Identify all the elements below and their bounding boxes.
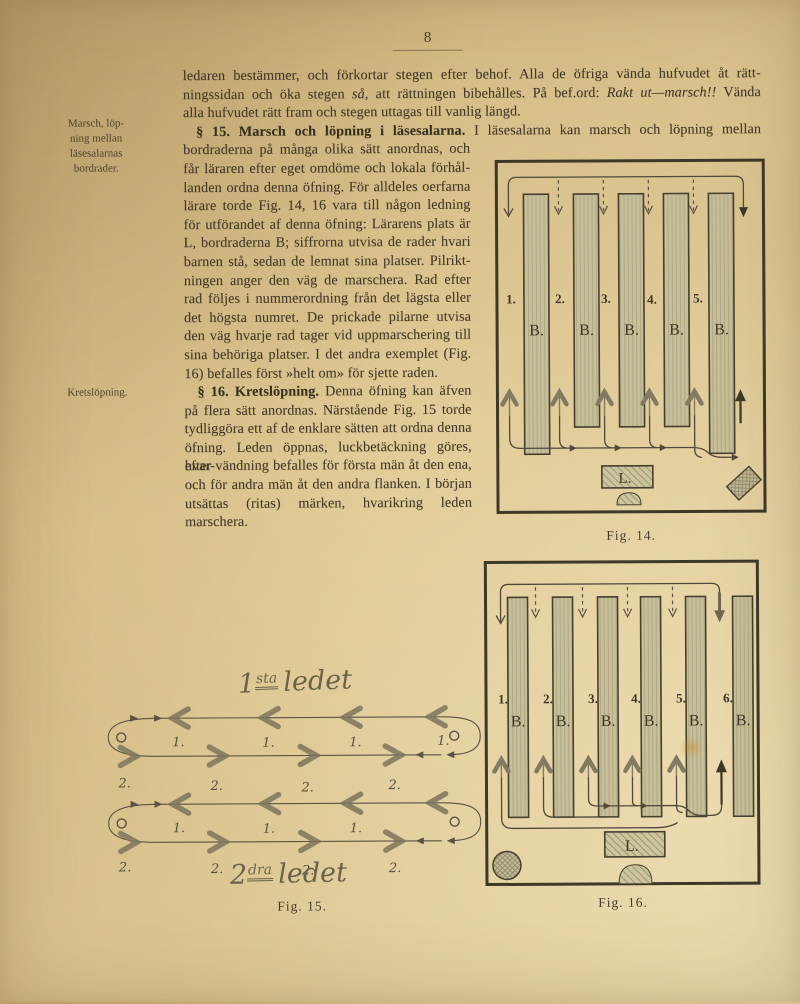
text-line: och för andra män åt den andra flanken. …: [185, 475, 472, 495]
scanned-book-page: { "page": { "number": "8" }, "margin_not…: [0, 0, 800, 1002]
text-line: öfning. Leden öppnas, luckbetäckning gör…: [185, 437, 472, 457]
desk-row: [641, 597, 662, 817]
margin-note-line: läsesalarnas: [32, 146, 160, 162]
fig16-desk-rows: [508, 596, 754, 817]
svg-text:1.: 1.: [263, 822, 275, 837]
svg-text:2.: 2.: [300, 780, 313, 795]
turning-mark-circle: [117, 733, 126, 742]
desk-row: [618, 194, 644, 427]
rank1-number: 1: [237, 668, 255, 700]
margin-note-marsch: Marsch, löp- ning mellan läsesalarnas bo…: [32, 116, 160, 177]
text-line: lärare torde Fig. 14, 16 vara till någon…: [183, 196, 470, 216]
svg-text:1.: 1.: [350, 821, 362, 836]
svg-text:B.: B.: [511, 713, 526, 730]
fig16-classroom-diagram: 1. 2. 3. 4. 5. 6. B. B. B. B. B. B.: [478, 554, 770, 924]
left-turn-loop: [108, 718, 156, 756]
svg-text:1.: 1.: [498, 691, 508, 706]
svg-text:B.: B.: [601, 713, 616, 730]
text-line: för utförandet af denna öfning: Lärarens…: [184, 214, 471, 234]
svg-text:1.: 1.: [173, 821, 185, 836]
svg-text:1.: 1.: [262, 736, 274, 751]
svg-text:B.: B.: [579, 322, 594, 339]
svg-text:1.: 1.: [437, 734, 449, 749]
solid-arrow-down-icon: [739, 207, 748, 217]
svg-text:3.: 3.: [588, 691, 598, 706]
paper-stain: [675, 732, 707, 762]
svg-text:2.: 2.: [388, 861, 401, 876]
fig14-caption: Fig. 14.: [606, 528, 656, 543]
text-line: utsättas (ritas) märken, hvarikring lede…: [185, 493, 472, 513]
svg-text:5.: 5.: [676, 691, 686, 706]
fig14-thick-up-arrow: [735, 389, 746, 423]
text-line: ningen anger den väg de marschera. Rad e…: [184, 270, 471, 290]
svg-text:B.: B.: [529, 322, 544, 339]
fig16-thick-down-arrow: [714, 592, 725, 622]
section-15-heading-line: § 15. Marsch och löpning i läsesalarna. …: [183, 120, 761, 142]
text-line: ningssidan och öka stegen så, att rättni…: [183, 83, 761, 105]
margin-note-kretslopning: Kretslöpning.: [33, 385, 161, 401]
svg-text:3.: 3.: [601, 291, 611, 306]
fig15-circuit-running-diagram: 1.1. 1.1. 2.2. 2.2.: [96, 699, 497, 866]
svg-text:2.: 2.: [387, 778, 400, 793]
desk-row: [573, 194, 599, 427]
svg-text:B.: B.: [714, 321, 729, 338]
desk-row: [663, 193, 689, 426]
desk-row: [508, 597, 529, 817]
fig14-classroom-diagram: 1. 2. 3. 4. 5. B. B. B. B. B.: [490, 153, 772, 552]
page-content: 8 Marsch, löp- ning mellan läsesalarnas …: [0, 0, 800, 1004]
svg-text:4.: 4.: [647, 292, 657, 307]
desk-row: [686, 596, 707, 816]
svg-text:5.: 5.: [693, 290, 703, 305]
rank2-word: ledet: [273, 857, 347, 890]
svg-text:B.: B.: [669, 322, 684, 339]
rank1-ordinal-suffix: sta: [255, 670, 279, 690]
text-line: efter vändning befalles för första män å…: [185, 456, 472, 476]
right-turn-loop: [442, 803, 481, 841]
svg-text:1.: 1.: [506, 291, 516, 306]
pupil-chevrons: [120, 708, 445, 766]
margin-note-line: ning mellan: [32, 131, 160, 147]
text-line: bordraderna på många olika sätt anordnas…: [183, 140, 470, 160]
svg-text:2.: 2.: [209, 779, 222, 794]
desk-row: [553, 597, 574, 817]
fig14-desk-labels: B. B. B. B. B.: [529, 321, 729, 339]
desk-row: [733, 596, 754, 816]
text-line: barnen stå, sedan de lemnat sina platser…: [184, 252, 471, 272]
turning-mark-circle: [450, 817, 459, 826]
page-number: 8: [393, 30, 463, 51]
text-line: sina behöriga platser. I det andra exemp…: [184, 345, 471, 365]
text-line: rad följes i nummerordning från det lägs…: [184, 289, 471, 309]
svg-text:B.: B.: [736, 712, 751, 729]
stove-icon: [727, 466, 761, 500]
margin-note-line: bordrader.: [32, 161, 160, 177]
fig15-rank1-title: 1staledet: [237, 664, 352, 700]
fig16-caption: Fig. 16.: [598, 895, 648, 910]
fig15-rank2-title: 2draledet: [230, 857, 348, 891]
svg-text:2.: 2.: [118, 860, 131, 875]
turning-mark-circle: [450, 731, 459, 740]
margin-note-line: Marsch, löp-: [32, 116, 160, 132]
teacher-desk-label: L.: [625, 838, 639, 855]
text-line: L, bordraderna B; siffrorna utvisa de ra…: [184, 233, 471, 253]
left-turn-loop: [109, 804, 157, 842]
rank2-number: 2: [230, 860, 248, 891]
fig15-caption: Fig. 15.: [257, 898, 347, 914]
svg-text:B.: B.: [624, 322, 639, 339]
fig16-thick-up-arrow: [716, 759, 727, 804]
svg-text:B.: B.: [556, 713, 571, 730]
door-icon: [617, 493, 641, 505]
fig16-desk-labels: B. B. B. B. B. B.: [511, 712, 751, 730]
teacher-desk-label: L.: [618, 471, 631, 487]
text-line: ledaren bestämmer, och förkortar stegen …: [183, 64, 761, 86]
rank2-ordinal-suffix: dra: [247, 862, 273, 882]
fig15-track-1: 1.1. 1.1. 2.2. 2.2.: [108, 708, 480, 797]
svg-text:6.: 6.: [723, 690, 733, 705]
svg-text:B.: B.: [644, 713, 659, 730]
svg-text:2.: 2.: [555, 291, 565, 306]
svg-text:4.: 4.: [631, 691, 641, 706]
text-line: den väg hvarje rad tager vid uppmarscher…: [184, 326, 471, 346]
svg-text:2.: 2.: [117, 776, 130, 791]
rank1-word: ledet: [278, 664, 353, 698]
svg-text:1.: 1.: [349, 735, 361, 750]
turning-mark-circle: [117, 819, 126, 828]
text-line: tydliggöra ett af de enklare sätten att …: [185, 419, 472, 439]
pupil-number-labels: 1.1. 1.1. 2.2. 2.2.: [117, 734, 450, 797]
pupil-chevrons: [121, 794, 446, 852]
desk-row: [598, 597, 619, 817]
text-line: det högsta numret. De prickade pilarne u…: [184, 307, 471, 327]
text-line: landen ordna denna öfning. För alldeles …: [183, 177, 470, 197]
door-icon: [619, 865, 652, 884]
section-16-heading-line: § 16. Kretslöpning. Denna öfning kan äfv…: [184, 382, 471, 402]
stove-icon: [493, 851, 521, 879]
text-line: på flera sätt anordnas. Närstående Fig. …: [184, 400, 471, 420]
svg-text:1.: 1.: [172, 735, 184, 750]
text-line: får läraren efter eget omdöme och lokala…: [183, 159, 470, 179]
svg-text:2.: 2.: [210, 862, 223, 877]
text-line: 16) befalles först »helt om» för sjette …: [184, 363, 471, 383]
svg-text:2.: 2.: [543, 691, 553, 706]
svg-text:B.: B.: [689, 712, 704, 729]
